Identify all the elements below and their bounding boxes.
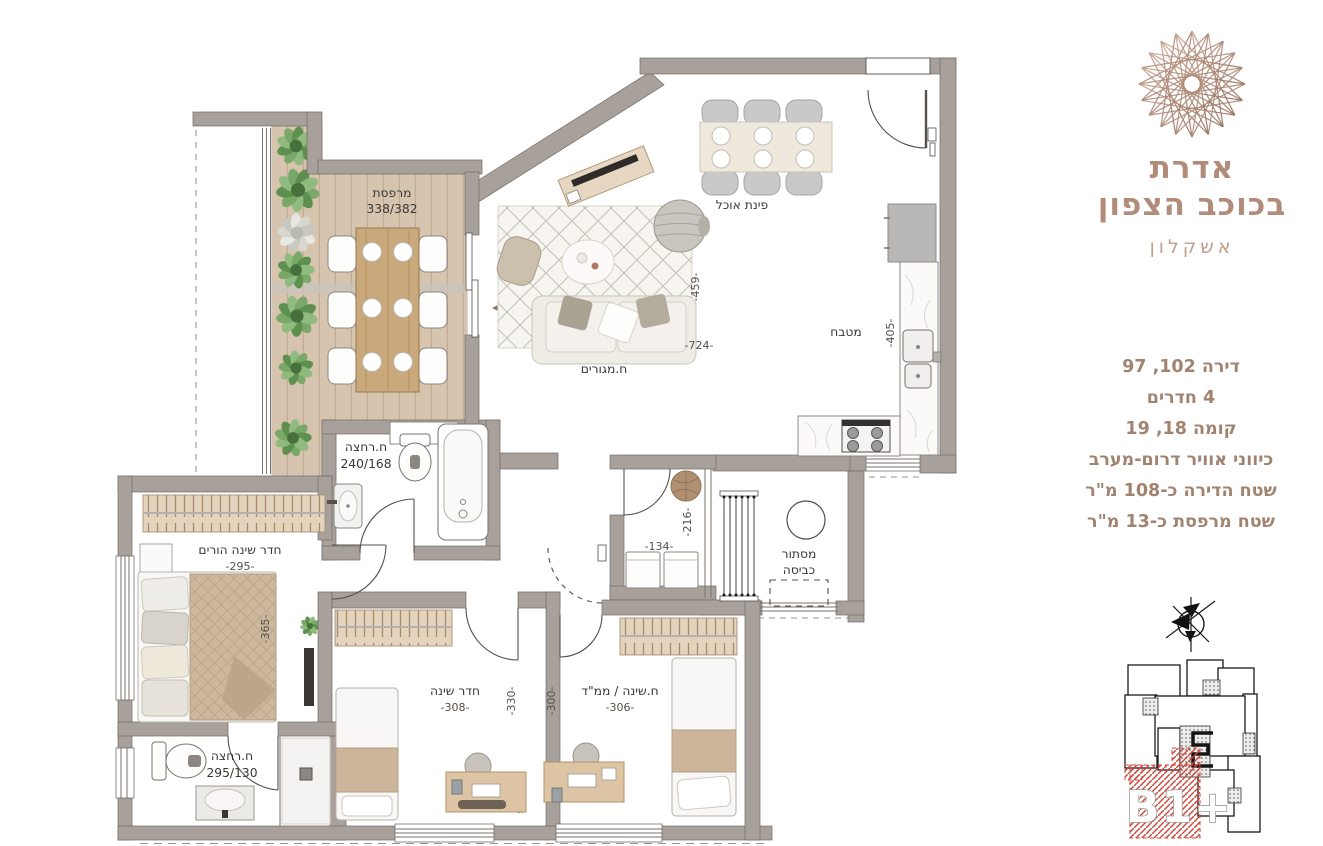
room-size-balcony: 338/382	[366, 202, 417, 216]
entrance-lintel	[866, 58, 930, 74]
north-arrow-icon	[1166, 597, 1215, 652]
bedroom-furniture	[335, 610, 526, 820]
laundry-fixtures	[626, 471, 828, 606]
dim-master-width: -295-	[226, 560, 255, 573]
refrigerator	[888, 204, 936, 262]
detail-apartment-area: שטח הדירה כ-108 מ"ר	[1040, 476, 1322, 507]
dim-laundry-width: -134-	[645, 540, 674, 553]
detail-orientation: כיווני אוויר דרום-מערב	[1040, 445, 1322, 476]
detail-apartment-number: דירה 102, 97	[1040, 352, 1322, 383]
dim-kitchen: -405-	[884, 319, 897, 348]
room-label-kitchen: מטבח	[830, 325, 861, 339]
dim-bedroom-width: -308-	[441, 701, 470, 714]
dim-living-width: -724-	[685, 339, 714, 352]
apartment-details: דירה 102, 97 4 חדרים קומה 18, 19 כיווני …	[1040, 352, 1322, 538]
dining-furniture	[700, 100, 832, 195]
room-label-master: חדר שינה הורים	[198, 543, 281, 557]
shower	[282, 738, 330, 824]
washing-machine	[626, 552, 660, 588]
master-bedroom-furniture	[138, 495, 325, 722]
room-label-laundry-screen-1: מסתור	[782, 547, 817, 561]
project-city: אשקלון	[1062, 236, 1322, 258]
room-label-dining: פינת אוכל	[716, 198, 768, 212]
project-name-line1: אדרת	[1062, 150, 1322, 187]
water-heater	[787, 501, 825, 539]
room-label-bedroom: חדר שינה	[430, 684, 480, 698]
dim-bedroom-height: -330-	[505, 687, 518, 716]
safe-room-furniture	[544, 618, 737, 816]
room-label-safe-room: ח.שינה / ממ"ד	[581, 684, 658, 698]
keyplan-unit-label: B1+	[1126, 782, 1233, 833]
project-logo: אדרת בכוכב הצפון אשקלון	[1062, 14, 1322, 258]
detail-rooms: 4 חדרים	[1040, 383, 1322, 414]
room-label-bathroom2: ח.רחצה	[211, 749, 253, 763]
room-size-bathroom1: 240/168	[340, 457, 391, 471]
detail-floor: קומה 18, 19	[1040, 414, 1322, 445]
floor-plan-page: מרפסת 338/382 פינת אוכל ח.מגורים -724- -…	[0, 0, 1323, 846]
balcony-table-set	[328, 228, 447, 392]
room-size-bathroom2: 295/130	[206, 766, 257, 780]
stove	[842, 420, 890, 452]
ac-unit-dashed	[770, 580, 828, 606]
dryer	[664, 552, 698, 588]
wall-tv	[304, 648, 314, 706]
room-label-laundry-screen-2: כביסה	[783, 563, 815, 577]
dim-living-height: -459-	[689, 273, 702, 302]
project-name-line2: בכוכב הצפון	[1062, 187, 1322, 224]
nightstand	[140, 544, 172, 576]
single-bed	[672, 658, 736, 816]
room-label-bathroom1: ח.רחצה	[345, 440, 387, 454]
dim-laundry-height: -216-	[681, 508, 694, 537]
dim-master-height: -365-	[259, 615, 272, 644]
dim-safe-room-height: -300-	[545, 687, 558, 716]
building-key-plan: B1+	[1125, 660, 1260, 838]
double-bed	[138, 572, 276, 722]
detail-balcony-area: שטח מרפסת כ-13 מ"ר	[1040, 507, 1322, 538]
living-room-furniture	[494, 146, 710, 364]
dim-safe-room-width: -306-	[606, 701, 635, 714]
kitchen-fixtures	[798, 204, 941, 456]
room-label-balcony: מרפסת	[372, 186, 411, 200]
single-bed	[336, 688, 398, 820]
room-label-living: ח.מגורים	[581, 362, 628, 376]
